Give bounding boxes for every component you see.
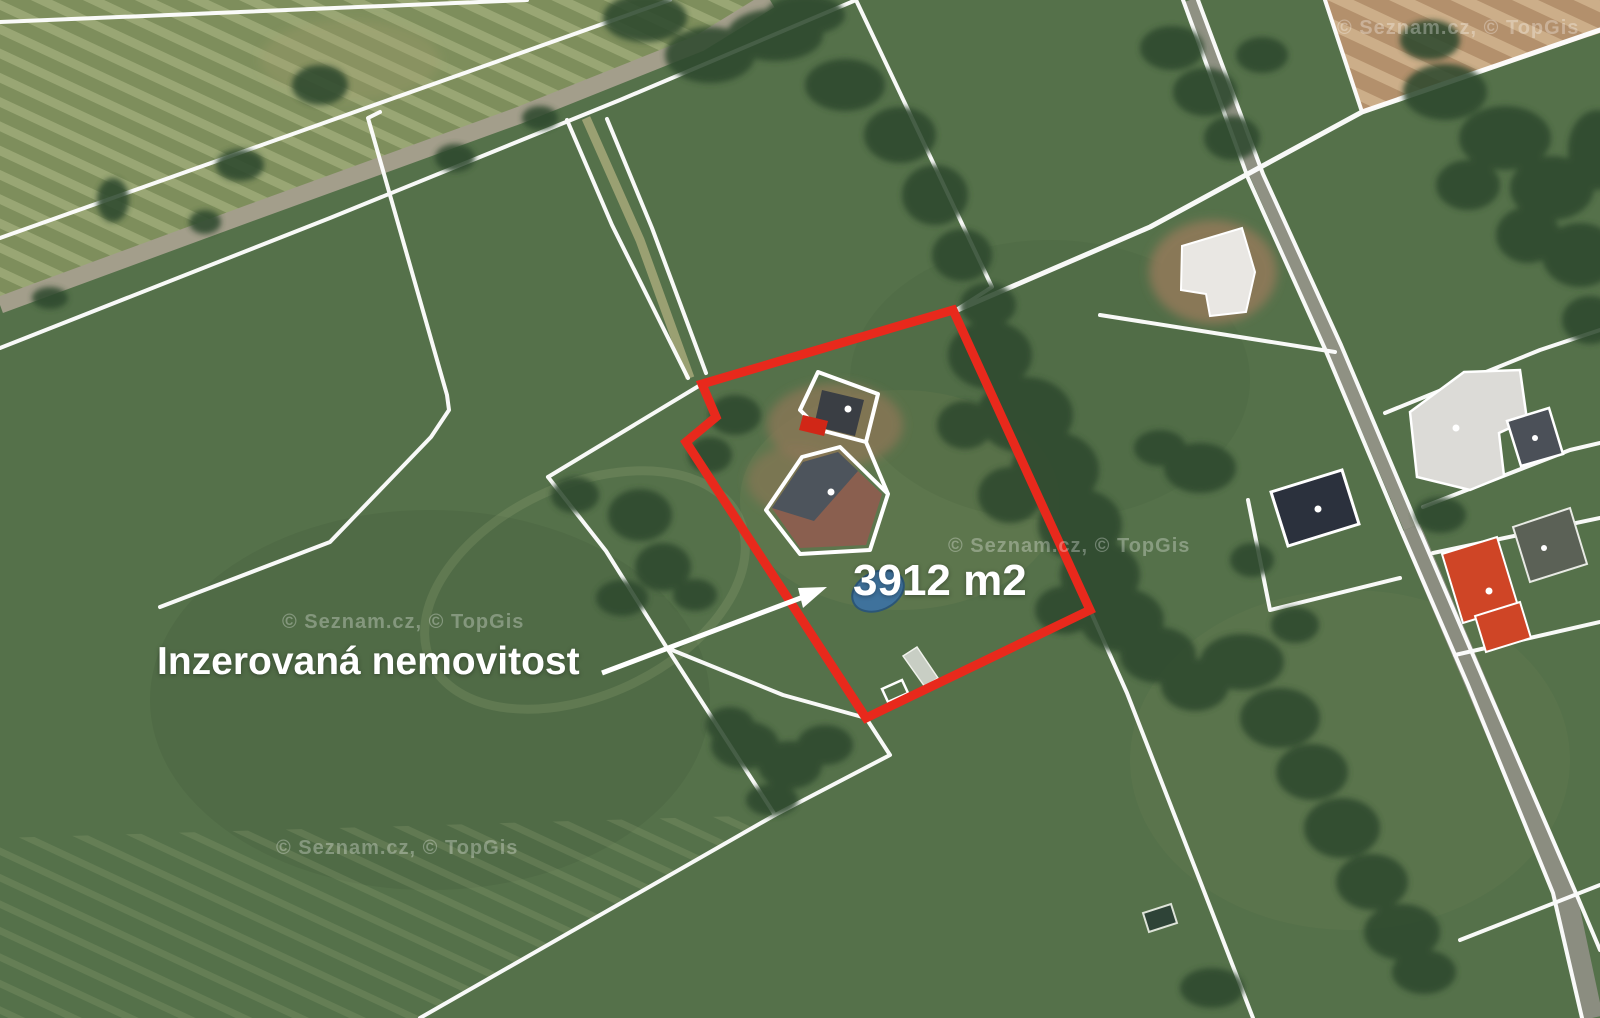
property-annotation-label: Inzerovaná nemovitost [157,642,580,681]
watermark: © Seznam.cz, © TopGis [276,838,518,858]
watermark: © Seznam.cz, © TopGis [1337,18,1579,38]
watermark: © Seznam.cz, © TopGis [282,612,524,632]
chimney-dot [1315,506,1322,513]
chimney-dot [1541,545,1547,551]
garage-chimney [845,406,852,413]
chimney-dot [1486,588,1493,595]
chimney-dot [1532,435,1538,441]
chimney-dot [1453,425,1460,432]
map-canvas [0,0,1600,1018]
area-label: 3912 m2 [853,559,1027,603]
satellite-map[interactable]: 3912 m2 Inzerovaná nemovitost © Seznam.c… [0,0,1600,1018]
watermark: © Seznam.cz, © TopGis [948,536,1190,556]
house-chimney [828,489,835,496]
